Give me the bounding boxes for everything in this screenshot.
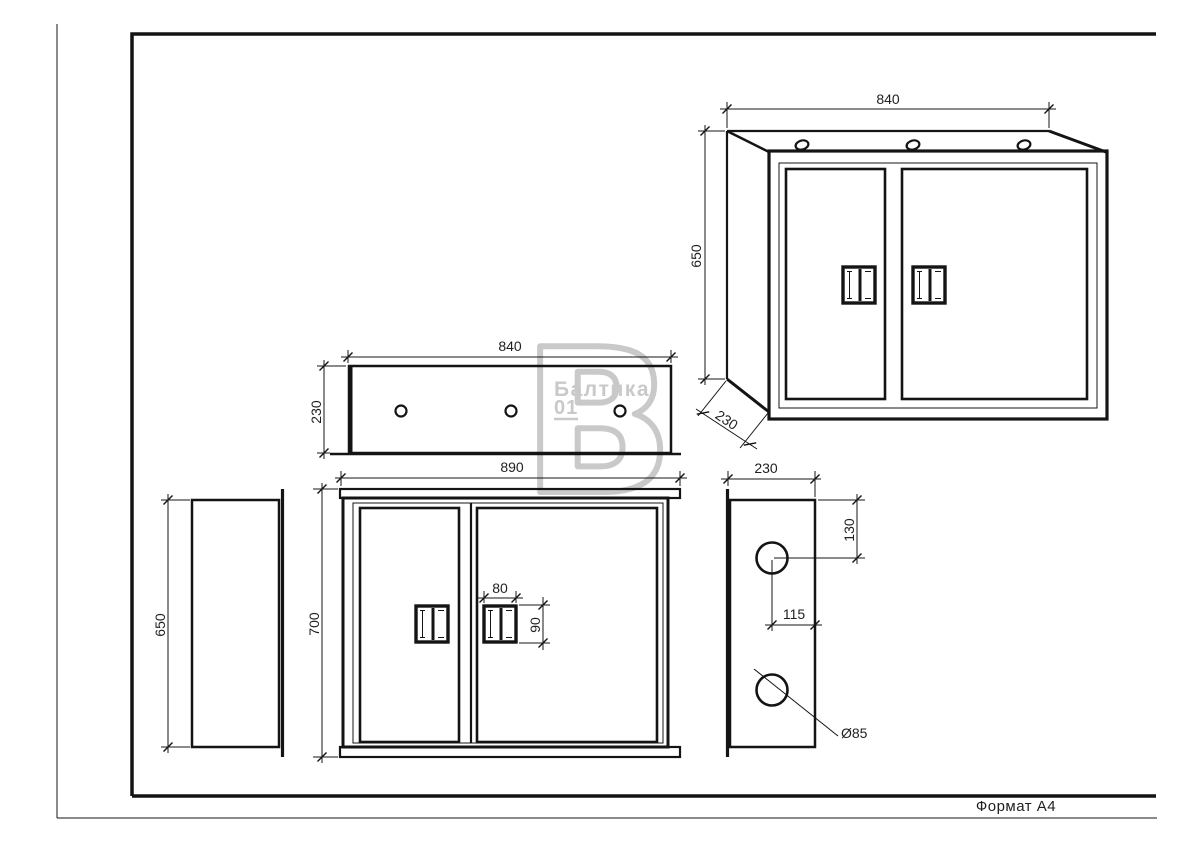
format-label: Формат А4 <box>976 798 1056 815</box>
top-right-slant <box>1049 131 1106 152</box>
dim-perspective-depth: 230 <box>696 381 768 450</box>
svg-text:650: 650 <box>688 244 704 268</box>
dim-right-width: 230 <box>721 460 821 497</box>
left-door-handle <box>843 267 875 303</box>
svg-text:650: 650 <box>152 613 168 637</box>
dim-perspective-width: 840 <box>720 91 1056 128</box>
svg-text:115: 115 <box>783 606 806 622</box>
dim-left-height: 650 <box>152 494 190 753</box>
svg-text:840: 840 <box>498 338 522 354</box>
watermark-number: 01 <box>554 397 578 419</box>
blueprint-canvas: В Балтика 01 Формат А4 <box>0 0 1200 848</box>
svg-text:80: 80 <box>492 580 508 596</box>
left-door-handle <box>416 606 448 642</box>
svg-text:Ø85: Ø85 <box>841 725 868 741</box>
mounting-hole <box>506 406 517 417</box>
cabinet-technical-drawing: В Балтика 01 Формат А4 <box>0 0 1200 848</box>
dim-hole-side-offset: 115 <box>765 560 822 631</box>
bottom-left-slant <box>727 379 769 412</box>
dim-perspective-height: 650 <box>688 125 725 385</box>
svg-text:890: 890 <box>500 459 524 475</box>
top-hole <box>906 139 921 151</box>
svg-text:230: 230 <box>308 400 324 424</box>
hose-hole-bottom <box>757 675 788 706</box>
side-panel-outline <box>192 500 279 747</box>
dim-handle-width: 80 <box>477 580 523 603</box>
svg-text:840: 840 <box>876 91 900 107</box>
view-side-right: 230 130 115 Ø85 <box>721 460 868 757</box>
svg-text:230: 230 <box>754 460 778 476</box>
svg-text:130: 130 <box>841 518 857 542</box>
watermark: В Балтика 01 <box>522 307 674 540</box>
watermark-monogram: В <box>522 307 674 540</box>
svg-text:700: 700 <box>306 612 322 636</box>
view-side-left: 650 <box>152 489 283 757</box>
top-hole <box>1017 139 1032 151</box>
dim-handle-height: 90 <box>519 597 550 650</box>
right-door-handle <box>484 606 516 642</box>
top-hole <box>795 139 810 151</box>
dim-top-depth: 230 <box>308 360 346 459</box>
svg-text:90: 90 <box>527 617 543 633</box>
right-door-handle <box>913 267 945 303</box>
view-perspective: 840 650 230 <box>688 91 1107 450</box>
top-left-slant <box>727 131 769 152</box>
mounting-hole <box>396 406 407 417</box>
dim-front-overall-height: 700 <box>306 483 338 763</box>
svg-text:230: 230 <box>713 407 741 433</box>
